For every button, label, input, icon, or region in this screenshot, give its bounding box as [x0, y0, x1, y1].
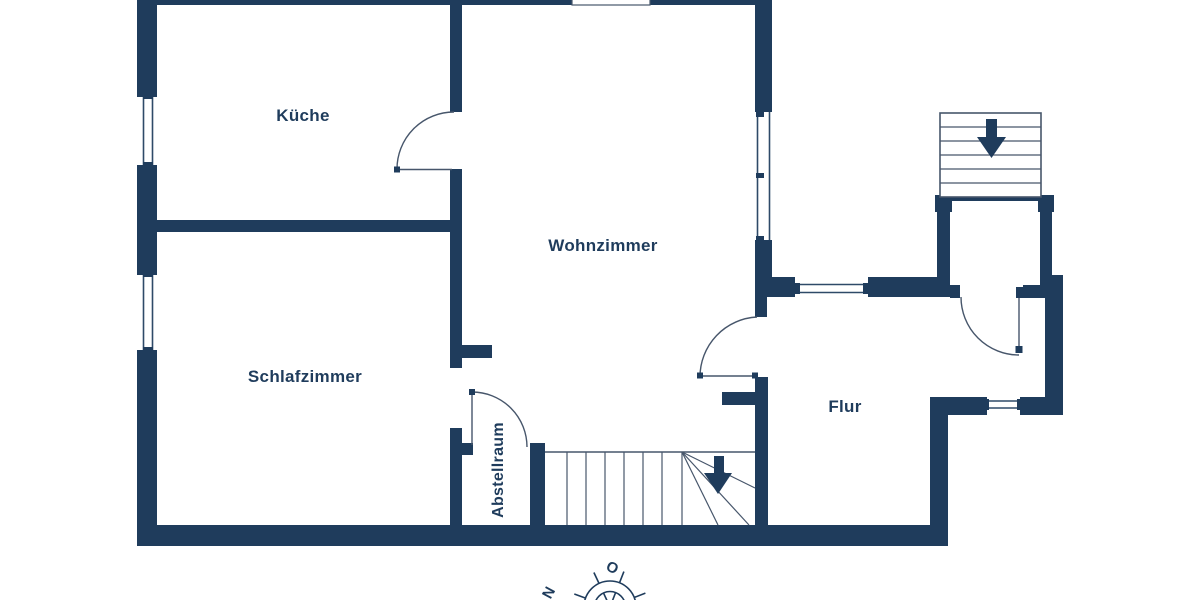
floor-plan: Küche Wohnzimmer Schlafzimmer Flur Abste… — [0, 0, 1200, 600]
wohnzimmer-right-window — [756, 112, 770, 241]
room-label-flur: Flur — [828, 397, 861, 416]
wohnzimmer-flur-door — [697, 317, 758, 379]
room-label-kueche: Küche — [276, 106, 329, 125]
exterior-staircase — [940, 113, 1041, 197]
schlafzimmer-window — [143, 273, 153, 351]
stairs-down-arrow-icon — [704, 456, 732, 494]
flur-north-window — [795, 283, 868, 294]
vestibule-walls — [935, 195, 1054, 298]
room-label-abstellraum: Abstellraum — [490, 422, 507, 518]
compass-rose: N O — [539, 558, 646, 600]
kueche-window — [143, 95, 153, 166]
room-label-wohnzimmer: Wohnzimmer — [548, 236, 658, 255]
compass-north-label: N — [539, 584, 559, 600]
wohnzimmer-top-window — [572, 0, 650, 5]
interior-staircase — [545, 452, 755, 525]
flur-south-window — [984, 399, 1022, 410]
compass-east-label: O — [603, 558, 622, 579]
floor-plan-drawing: Küche Wohnzimmer Schlafzimmer Flur Abste… — [0, 0, 1200, 600]
interior-walls — [157, 0, 768, 525]
exterior-walls — [137, 0, 1063, 546]
kueche-door — [394, 112, 454, 173]
room-label-schlafzimmer: Schlafzimmer — [248, 367, 362, 386]
entrance-door — [961, 297, 1023, 355]
